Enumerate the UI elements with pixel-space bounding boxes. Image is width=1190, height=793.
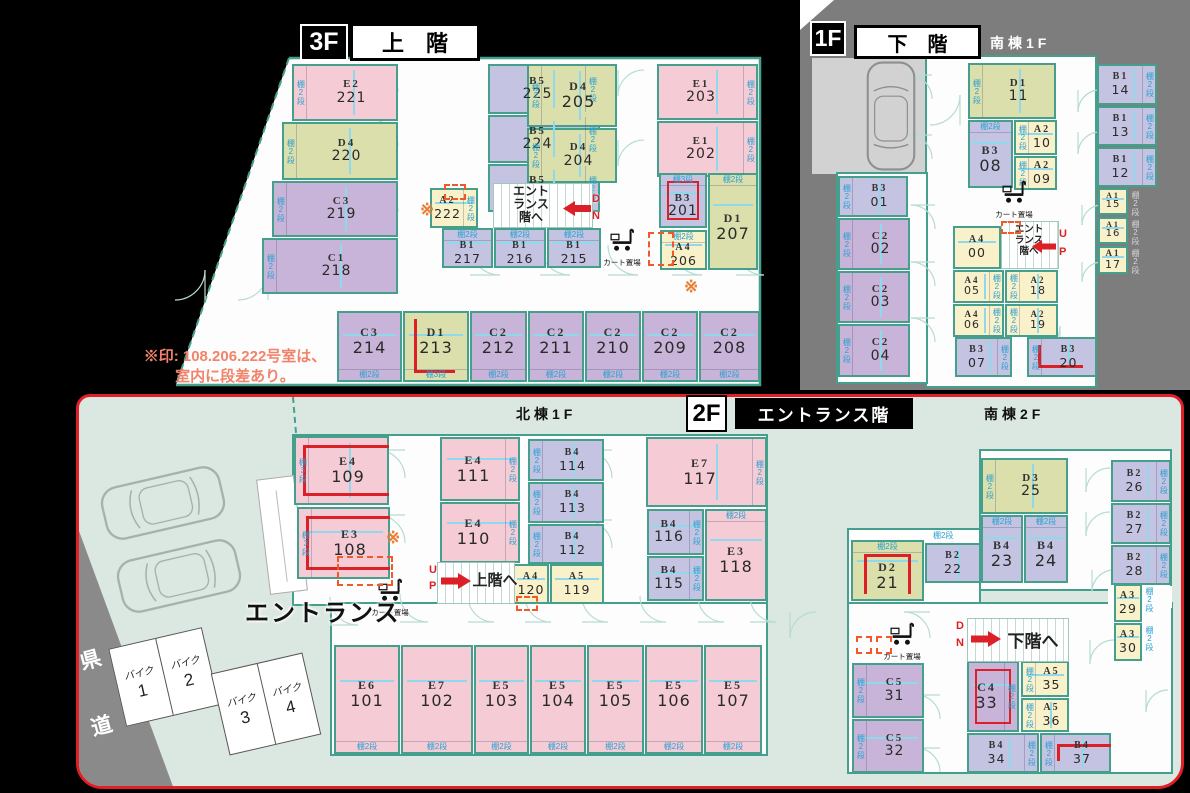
- room-number: 221: [337, 91, 367, 106]
- room-type: D1: [724, 212, 743, 225]
- shelf-tier-label: 棚2段: [933, 530, 953, 541]
- room-number: 107: [716, 692, 750, 709]
- room-number: 00: [968, 246, 986, 260]
- shelf-tier-label: 棚2段: [1007, 272, 1020, 301]
- room-number: 32: [885, 744, 905, 759]
- shelf-tier-label: 棚2段: [1130, 220, 1141, 245]
- room-24: 棚2段B424: [1024, 515, 1068, 583]
- room-205: 棚2段D4205: [527, 64, 617, 127]
- shelf-tier-label: 棚2段: [1156, 547, 1169, 583]
- room-type: E5: [492, 679, 510, 692]
- shelf-tier-label: 棚2段: [840, 220, 853, 268]
- step-note: ※印: 108.206.222号室は、 室内に段差あり。: [126, 347, 344, 386]
- room-218: 棚2段C1218: [262, 238, 398, 294]
- step-star-marker: ※: [386, 528, 400, 548]
- room-number: 214: [353, 339, 387, 356]
- room-201: 棚3段B3201: [659, 173, 707, 228]
- room-number: 11: [1009, 89, 1029, 104]
- room-17: A117: [1098, 246, 1128, 274]
- cart-icon: [1000, 180, 1028, 205]
- room-number: 05: [964, 285, 980, 297]
- room-106: 棚2段E5106: [645, 645, 703, 754]
- room-112: 棚2段B4112: [528, 524, 604, 564]
- cart-icon: [888, 622, 916, 647]
- shelf-tier-label: 棚3段: [405, 369, 467, 380]
- arrow-left-icon: [1032, 240, 1056, 253]
- room-number: 212: [482, 339, 516, 356]
- room-15: A115: [1098, 188, 1128, 215]
- shelf-tier-label: 棚2段: [1144, 626, 1155, 651]
- room-number: 219: [327, 207, 357, 222]
- room-number: 25: [1021, 484, 1041, 499]
- room-number: 215: [561, 252, 588, 266]
- shelf-tier-label: 棚2段: [294, 66, 307, 119]
- room-105: 棚2段E5105: [587, 645, 644, 754]
- room-216: 棚2段B1216: [494, 228, 546, 268]
- shelf-tier-label: 棚2段: [274, 183, 287, 235]
- shelf-tier-label: 棚2段: [854, 665, 867, 716]
- room-number: 22: [944, 562, 962, 576]
- room-217: 棚2段B1217: [442, 228, 493, 268]
- room-number: 114: [559, 459, 586, 473]
- room-219: 棚2段C3219: [272, 181, 398, 237]
- room-number: 120: [518, 583, 545, 597]
- shelf-tier-label: 棚2段: [336, 741, 398, 752]
- room-05: 棚2段A405: [953, 270, 1004, 303]
- room-number: 03: [871, 295, 891, 310]
- room-102: 棚2段E7102: [401, 645, 473, 754]
- shelf-tier-label: 棚2段: [689, 558, 702, 599]
- room-109: 棚3段E4109: [294, 436, 389, 505]
- down-letter: N: [592, 210, 600, 222]
- room-number: 29: [1119, 602, 1137, 616]
- room-107: 棚2段E5107: [704, 645, 762, 754]
- room-number: 102: [420, 692, 454, 709]
- step-star-marker: ※: [684, 277, 698, 297]
- room-20: 棚2段B320: [1027, 337, 1097, 377]
- room-01: 棚2段B301: [838, 176, 908, 217]
- room-23: 棚2段B423: [981, 515, 1023, 583]
- dashed-marker: [516, 596, 538, 611]
- shelf-tier-label: 棚2段: [983, 460, 996, 512]
- room-209: 棚2段C2209: [642, 311, 698, 382]
- room-number: 23: [991, 552, 1013, 569]
- room-number: 27: [1126, 522, 1144, 536]
- shelf-line: [1147, 508, 1149, 539]
- shelf-tier-label: 棚2段: [1144, 587, 1155, 612]
- room-number: 18: [1030, 285, 1046, 297]
- shelf-line: [553, 70, 555, 109]
- room-type: C2: [720, 326, 739, 339]
- room-number: 118: [719, 558, 753, 575]
- shelf-line: [984, 308, 986, 332]
- room-type: E7: [691, 457, 709, 470]
- room-207: 棚2段D1207: [708, 173, 758, 270]
- room-103: 棚2段E5103: [474, 645, 529, 754]
- room-number: 15: [1106, 200, 1121, 211]
- room-118: 棚2段E3118: [705, 509, 767, 601]
- room-02: 棚2段C202: [838, 218, 910, 270]
- room-104: 棚2段E5104: [530, 645, 586, 754]
- room-14: 棚2段B114: [1097, 64, 1157, 105]
- up-letter: U: [429, 564, 437, 576]
- shelf-tier-label: 棚2段: [710, 175, 756, 186]
- room-number: 217: [454, 252, 481, 266]
- shelf-tier-label: 棚2段: [1029, 339, 1042, 375]
- room-type: E6: [358, 679, 376, 692]
- room-number: 17: [1105, 259, 1121, 271]
- shelf-tier-label: 棚2段: [1016, 122, 1029, 153]
- room-03: 棚2段C203: [838, 271, 910, 323]
- room-28: 棚2段B228: [1111, 545, 1171, 585]
- room-101: 棚2段E6101: [334, 645, 400, 754]
- shelf-tier-label: 棚2段: [589, 741, 642, 752]
- room-22: B222: [925, 543, 981, 583]
- room-type: C3: [360, 326, 379, 339]
- shelf-tier-label: 棚2段: [264, 240, 277, 292]
- room-number: 109: [331, 468, 365, 485]
- room-number: 37: [1073, 752, 1091, 766]
- room-214: 棚2段C3214: [337, 311, 402, 382]
- room-10: 棚2段A210: [1014, 120, 1057, 155]
- shelf-tier-label: 棚2段: [505, 439, 518, 499]
- shelf-tier-label: 棚2段: [530, 526, 543, 562]
- room-number: 07: [968, 356, 986, 370]
- room-type: C2: [489, 326, 508, 339]
- arrow-right-icon: [441, 573, 471, 589]
- room-number: 33: [975, 694, 997, 711]
- floor-title-1f: 下 階: [854, 25, 981, 59]
- down-letter: N: [956, 637, 964, 649]
- room-number: 28: [1126, 564, 1144, 578]
- shelf-tier-label: 棚2段: [743, 123, 756, 175]
- floor-plan: バイク 1 バイク 2 バイク 3 バイク 4 棚2段E2221棚2段D4220…: [0, 0, 1190, 793]
- room-type: E4: [464, 454, 482, 467]
- room-number: 26: [1126, 480, 1144, 494]
- room-208: 棚2段C2208: [699, 311, 760, 382]
- shelf-line: [1133, 152, 1135, 182]
- shelf-tier-label: 棚2段: [1142, 108, 1155, 144]
- room-number: 218: [322, 264, 352, 279]
- stairs-3f-label: エントランス階へ: [500, 185, 562, 224]
- shelf-tier-label: 棚3段: [296, 438, 309, 503]
- room-27: 棚2段B227: [1111, 503, 1171, 544]
- shelf-tier-label: 棚2段: [1156, 462, 1169, 500]
- shelf-line: [716, 127, 718, 171]
- shelf-line: [1133, 69, 1135, 100]
- shelf-tier-label: 棚2段: [970, 122, 1011, 133]
- room-16: A116: [1098, 217, 1128, 244]
- up-letter: P: [1059, 246, 1066, 258]
- dashed-marker: [444, 184, 466, 200]
- room-number: 13: [1112, 125, 1130, 139]
- room-number: 104: [541, 692, 575, 709]
- shelf-tier-label: 棚2段: [970, 65, 983, 117]
- shelf-tier-label: 棚2段: [530, 441, 543, 479]
- shelf-tier-label: 棚2段: [989, 272, 1002, 301]
- shelf-tier-label: 棚2段: [1024, 735, 1037, 771]
- shelf-tier-label: 棚3段: [661, 175, 705, 186]
- room-number: 36: [1043, 714, 1061, 728]
- shelf-tier-label: 棚2段: [496, 230, 544, 241]
- room-32: 棚2段C532: [852, 719, 924, 773]
- shelf-tier-label: 棚2段: [701, 369, 758, 380]
- room-12: 棚2段B112: [1097, 147, 1157, 187]
- room-number: 101: [350, 692, 384, 709]
- room-116: 棚2段B4116: [647, 509, 704, 555]
- shelf-tier-label: 棚2段: [647, 741, 701, 752]
- room-number: 35: [1043, 678, 1061, 692]
- room-number: 201: [668, 204, 698, 219]
- room-202: 棚2段E1202: [657, 121, 758, 177]
- shelf-tier-label: 棚2段: [707, 511, 765, 522]
- room-number: 12: [1112, 166, 1130, 180]
- room-number: 08: [979, 157, 1001, 174]
- wing-label-south-1f: 南棟1F: [990, 33, 1050, 53]
- cart-area-3f: カート置場: [598, 228, 646, 268]
- room-211: 棚2段C2211: [528, 311, 584, 382]
- shelf-line: [553, 121, 555, 158]
- room-type: D1: [427, 326, 446, 339]
- shelf-tier-label: 棚2段: [983, 517, 1021, 528]
- room-number: 06: [964, 319, 980, 331]
- room-type: C2: [661, 326, 680, 339]
- room-33: 棚2段C433: [967, 661, 1019, 732]
- up-letter: U: [1059, 228, 1067, 240]
- dashed-marker: [648, 232, 674, 266]
- room-type: E3: [341, 528, 359, 541]
- shelf-tier-label: 棚2段: [743, 66, 756, 118]
- room-type: E5: [665, 679, 683, 692]
- note-line-1: ※印: 108.206.222号室は、: [126, 347, 344, 367]
- room-number: 01: [871, 195, 889, 209]
- room-number: 20: [1060, 356, 1078, 370]
- shelf-tier-label: 棚2段: [853, 542, 922, 553]
- room-type: E7: [428, 679, 446, 692]
- room-37: 棚2段B437: [1040, 733, 1111, 773]
- shelf-tier-label: 棚2段: [505, 504, 518, 561]
- shelf-tier-label: 棚2段: [1007, 306, 1020, 335]
- room-number: 209: [653, 339, 687, 356]
- shelf-tier-label: 棚2段: [530, 484, 543, 521]
- room-type: D2: [878, 561, 897, 574]
- cart-area-label: カート置場: [598, 257, 646, 268]
- down-letter: D: [956, 620, 964, 632]
- room-number: 24: [1035, 552, 1057, 569]
- room-115: 棚2段B4115: [647, 556, 704, 601]
- arrow-right-icon: [971, 631, 1001, 647]
- dashed-marker: [856, 636, 872, 654]
- shelf-tier-label: 棚2段: [997, 339, 1010, 375]
- shelf-tier-label: 棚2段: [587, 369, 639, 380]
- room-215: 棚2段B1215: [547, 228, 601, 268]
- room-number: 112: [559, 543, 586, 557]
- room-number: 10: [1033, 136, 1051, 150]
- room-21: 棚2段D221: [851, 540, 924, 601]
- room-number: 115: [654, 577, 684, 592]
- stairs-2f-up-label: 上階へ: [472, 569, 518, 590]
- room-220: 棚2段D4220: [282, 122, 398, 180]
- room-07: 棚2段B307: [955, 337, 1012, 377]
- shelf-tier-label: 棚2段: [472, 369, 525, 380]
- shelf-line: [710, 539, 761, 541]
- shelf-line: [713, 204, 754, 206]
- room-number: 111: [457, 467, 491, 484]
- room-number: 113: [559, 501, 586, 515]
- room-26: 棚2段B226: [1111, 460, 1171, 502]
- room-19: 棚2段A219: [1005, 304, 1058, 337]
- cart-icon: [608, 228, 636, 253]
- room-111: 棚2段E4111: [440, 437, 520, 501]
- room-number: 202: [686, 147, 716, 162]
- floor-title-2f: エントランス階: [735, 398, 913, 429]
- shelf-tier-label: 棚2段: [1130, 249, 1141, 274]
- room-type: C2: [547, 326, 566, 339]
- floor-tag-2f: 2F: [686, 395, 727, 432]
- room-number: 213: [419, 339, 453, 356]
- shelf-tier-label: 棚2段: [1142, 66, 1155, 103]
- shelf-line: [716, 70, 718, 114]
- cart-area-1f: カート置場: [990, 180, 1038, 220]
- down-letter: D: [592, 193, 600, 205]
- room-117: 棚2段E7117: [646, 437, 767, 507]
- room-119: A5119: [550, 564, 604, 604]
- room-number: 19: [1030, 319, 1046, 331]
- room-13: 棚2段B113: [1097, 106, 1157, 146]
- room-29: A329: [1114, 584, 1142, 622]
- dashed-marker: [337, 556, 393, 586]
- room-30: A330: [1114, 623, 1142, 661]
- dashed-marker: [1001, 221, 1021, 234]
- shelf-tier-label: 棚2段: [476, 741, 527, 752]
- room-114: 棚2段B4114: [528, 439, 604, 481]
- shelf-tier-label: 棚2段: [530, 369, 582, 380]
- room-type: C2: [604, 326, 623, 339]
- room-213: 棚3段D1213: [403, 311, 469, 382]
- room-number: 207: [716, 225, 750, 242]
- room-number: 205: [562, 93, 596, 110]
- dashed-marker: [876, 636, 892, 654]
- room-number: 04: [871, 349, 891, 364]
- room-18: 棚2段A218: [1005, 270, 1058, 303]
- room-203: 棚2段E1203: [657, 64, 758, 120]
- room-number: 203: [686, 90, 716, 105]
- room-110: 棚2段E4110: [440, 502, 520, 563]
- shelf-tier-label: 棚2段: [1004, 663, 1017, 730]
- room-06: 棚2段A406: [953, 304, 1004, 337]
- room-number: 117: [683, 470, 717, 487]
- floor-tag-3f: 3F: [300, 24, 348, 61]
- shelf-tier-label: 棚2段: [854, 721, 867, 771]
- room-00: A400: [953, 226, 1001, 269]
- room-number: 222: [434, 207, 461, 221]
- shelf-tier-label: 棚2段: [529, 130, 542, 181]
- room-number: 106: [657, 692, 691, 709]
- room-type: E5: [606, 679, 624, 692]
- entrance-label: エントランス: [245, 593, 401, 628]
- shelf-tier-label: 棚2段: [529, 66, 542, 125]
- room-number: 105: [599, 692, 633, 709]
- shelf-tier-label: 棚2段: [989, 306, 1002, 335]
- room-number: 211: [539, 339, 573, 356]
- step-star-marker: ※: [420, 200, 434, 220]
- shelf-tier-label: 棚2段: [840, 326, 853, 375]
- room-number: 16: [1106, 229, 1121, 240]
- room-number: 216: [507, 252, 534, 266]
- wing-label-north-1f: 北棟1F: [516, 404, 576, 424]
- room-number: 02: [871, 242, 891, 257]
- shelf-tier-label: 棚2段: [689, 511, 702, 553]
- room-number: 210: [596, 339, 630, 356]
- shelf-tier-label: 棚2段: [1026, 517, 1066, 528]
- wing-label-south-2f: 南棟2F: [984, 404, 1044, 424]
- room-113: 棚2段B4113: [528, 482, 604, 523]
- room-212: 棚2段C2212: [470, 311, 527, 382]
- shelf-tier-label: 棚2段: [1130, 191, 1141, 216]
- room-type: E5: [724, 679, 742, 692]
- room-number: 116: [654, 530, 684, 545]
- shelf-tier-label: 棚2段: [1156, 505, 1169, 542]
- shelf-line: [989, 342, 991, 372]
- shelf-line: [1009, 738, 1011, 768]
- room-34: 棚2段B434: [967, 733, 1039, 773]
- room-35: 棚2段A535: [1021, 661, 1069, 697]
- room-number: 14: [1112, 83, 1130, 97]
- shelf-tier-label: 棚2段: [549, 230, 599, 241]
- shelf-tier-label: 棚2段: [444, 230, 491, 241]
- floor-tag-1f: 1F: [810, 21, 846, 56]
- room-11: 棚2段D111: [968, 63, 1056, 119]
- rooms-layer: 棚2段E2221棚2段D4220棚2段C3219棚2段C1218棚2段B5225…: [0, 0, 1190, 793]
- room-08: 棚2段B308: [968, 120, 1013, 188]
- room-31: 棚2段C531: [852, 663, 924, 718]
- room-number: 119: [564, 583, 591, 597]
- shelf-tier-label: 棚2段: [403, 741, 471, 752]
- shelf-line: [984, 274, 986, 298]
- shelf-tier-label: 棚2段: [840, 178, 853, 215]
- up-letter: P: [429, 580, 436, 592]
- room-type: E5: [549, 679, 567, 692]
- shelf-tier-label: 棚2段: [284, 124, 297, 178]
- room-number: 103: [485, 692, 519, 709]
- room-number: 34: [988, 752, 1006, 766]
- shelf-tier-label: 棚2段: [1023, 663, 1036, 695]
- room-number: 31: [885, 689, 905, 704]
- shelf-tier-label: 棚2段: [1142, 149, 1155, 185]
- shelf-tier-label: 棚2段: [840, 273, 853, 321]
- shelf-line: [1147, 550, 1149, 580]
- cart-area-label: カート置場: [990, 209, 1038, 220]
- floor-title-3f: 上 階: [350, 23, 480, 61]
- room-number: 208: [713, 339, 747, 356]
- shelf-tier-label: 棚2段: [339, 369, 400, 380]
- stairs-2f-down-label: 下階へ: [1001, 627, 1065, 652]
- room-25: 棚2段D325: [981, 458, 1068, 514]
- shelf-tier-label: 棚3段: [299, 509, 312, 577]
- arrow-left-icon: [563, 201, 591, 216]
- shelf-tier-label: 棚2段: [706, 741, 760, 752]
- note-line-2: 室内に段差あり。: [126, 367, 344, 387]
- shelf-tier-label: 棚2段: [1023, 700, 1036, 730]
- room-number: 30: [1119, 641, 1137, 655]
- shelf-tier-label: 棚2段: [644, 369, 696, 380]
- shelf-tier-label: 棚2段: [1042, 735, 1055, 771]
- room-number: 110: [457, 530, 491, 547]
- room-number: 206: [670, 254, 697, 268]
- shelf-tier-label: 棚2段: [752, 439, 765, 505]
- room-204: 棚2段D4204: [527, 128, 617, 183]
- room-210: 棚2段C2210: [585, 311, 641, 382]
